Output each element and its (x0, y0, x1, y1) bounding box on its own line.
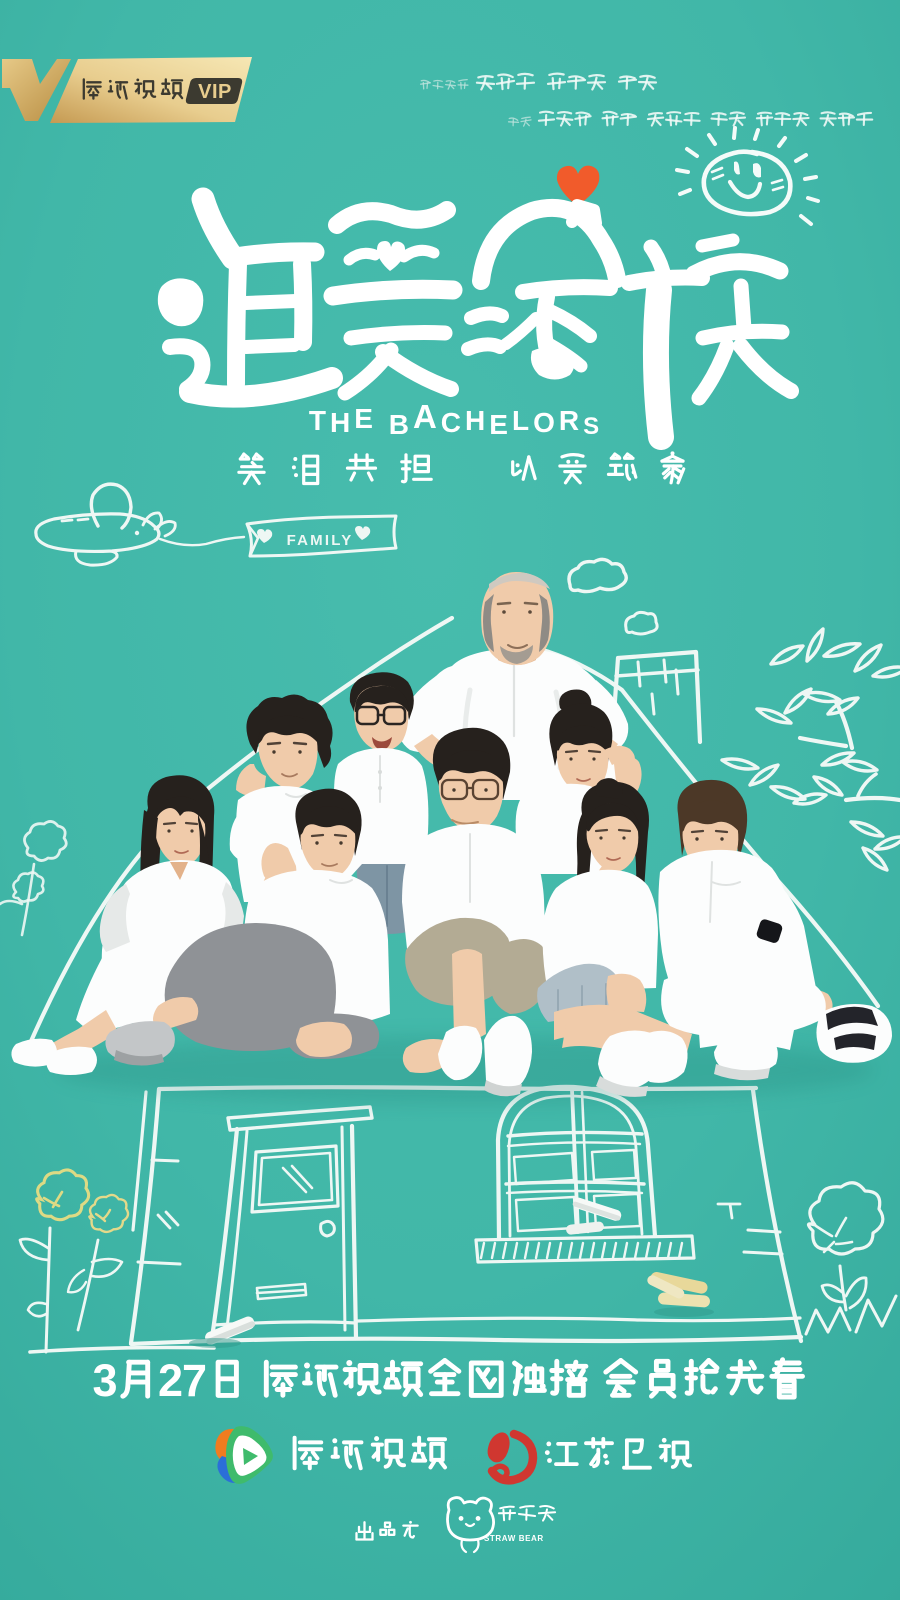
svg-text:2: 2 (158, 1355, 183, 1406)
svg-text:STRAW BEAR: STRAW BEAR (484, 1534, 544, 1543)
svg-text:7: 7 (182, 1355, 207, 1406)
svg-text:FAMILY: FAMILY (287, 532, 354, 549)
svg-text:3: 3 (92, 1355, 117, 1406)
svg-text:VIP: VIP (198, 81, 232, 103)
